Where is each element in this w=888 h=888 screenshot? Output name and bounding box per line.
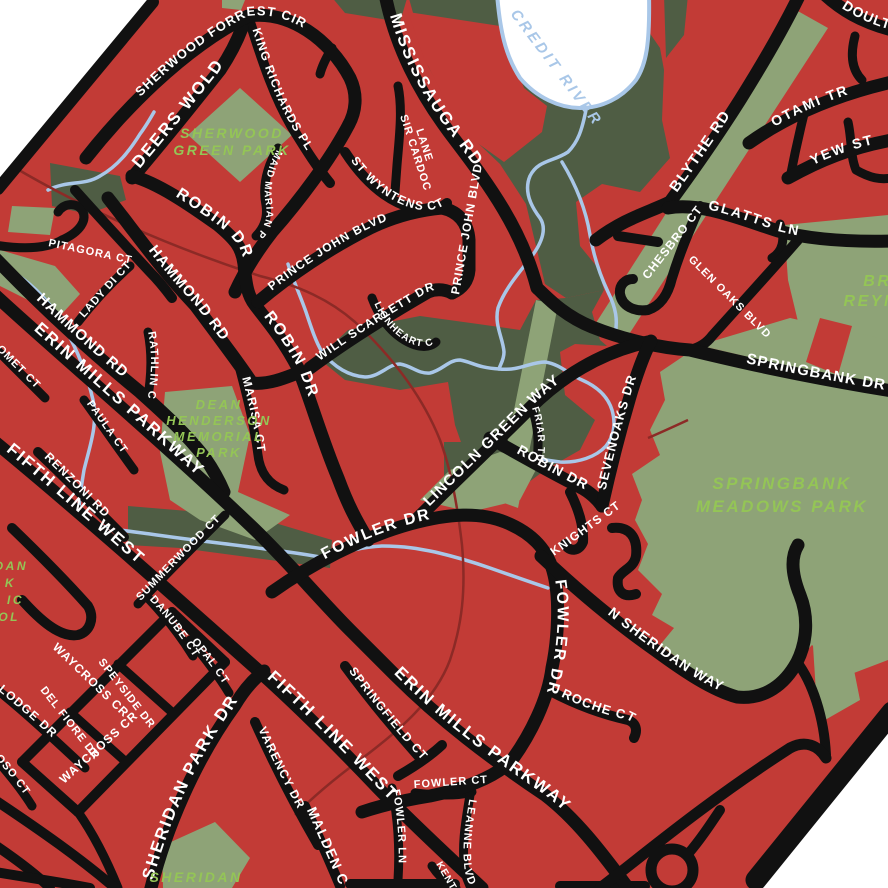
svg-text:PARK: PARK <box>196 445 242 460</box>
svg-text:SHERIDAN: SHERIDAN <box>149 869 242 885</box>
svg-text:K: K <box>5 576 16 590</box>
svg-text:REYNOLDS: REYNOLDS <box>844 293 888 310</box>
svg-text:HENDERSON: HENDERSON <box>166 413 272 428</box>
svg-text:MEADOWS PARK: MEADOWS PARK <box>696 497 868 516</box>
svg-text:IC: IC <box>7 593 24 607</box>
svg-text:SHERWOOD: SHERWOOD <box>180 125 284 141</box>
svg-text:OL: OL <box>0 610 20 624</box>
svg-text:MEMORIAL: MEMORIAL <box>174 429 265 444</box>
svg-text:SPRINGBANK: SPRINGBANK <box>712 474 851 493</box>
svg-text:BRUCE: BRUCE <box>863 273 888 290</box>
svg-text:GREEN PARK: GREEN PARK <box>173 142 290 158</box>
svg-text:DAN: DAN <box>0 559 28 573</box>
svg-text:DEAN: DEAN <box>196 397 243 412</box>
